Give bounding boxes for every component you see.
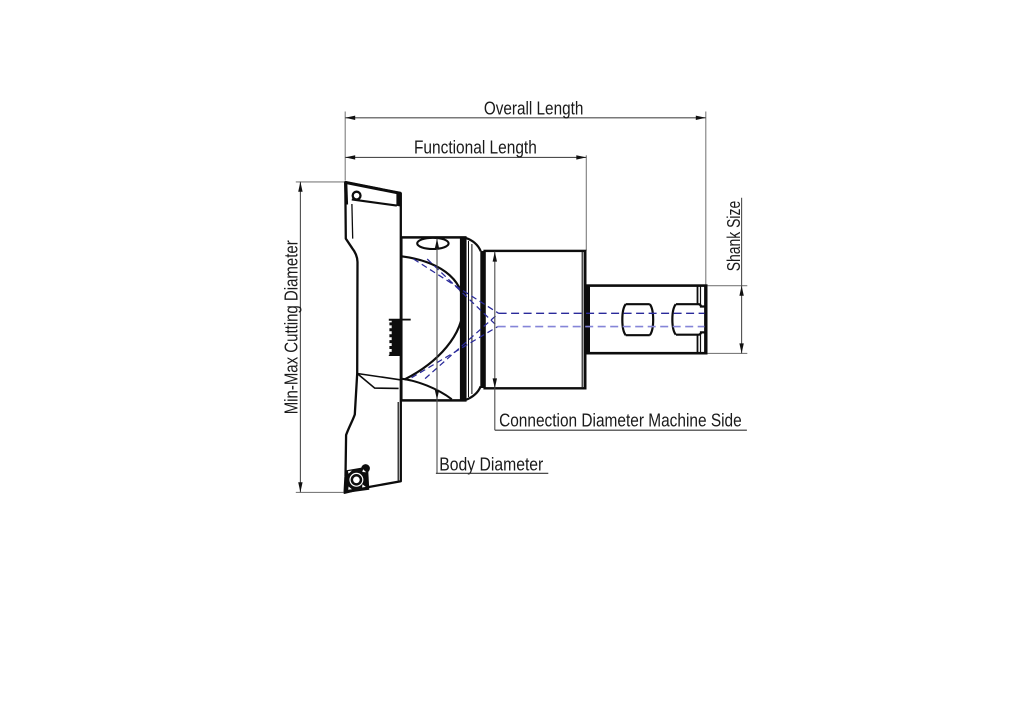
svg-text:Overall Length: Overall Length bbox=[484, 97, 584, 118]
svg-text:Body Diameter: Body Diameter bbox=[439, 453, 543, 474]
svg-text:Functional Length: Functional Length bbox=[414, 137, 537, 158]
svg-text:Min-Max Cutting Diameter: Min-Max Cutting Diameter bbox=[281, 240, 302, 414]
svg-text:Shank Size: Shank Size bbox=[723, 201, 744, 272]
svg-text:Connection Diameter Machine Si: Connection Diameter Machine Side bbox=[499, 410, 742, 431]
